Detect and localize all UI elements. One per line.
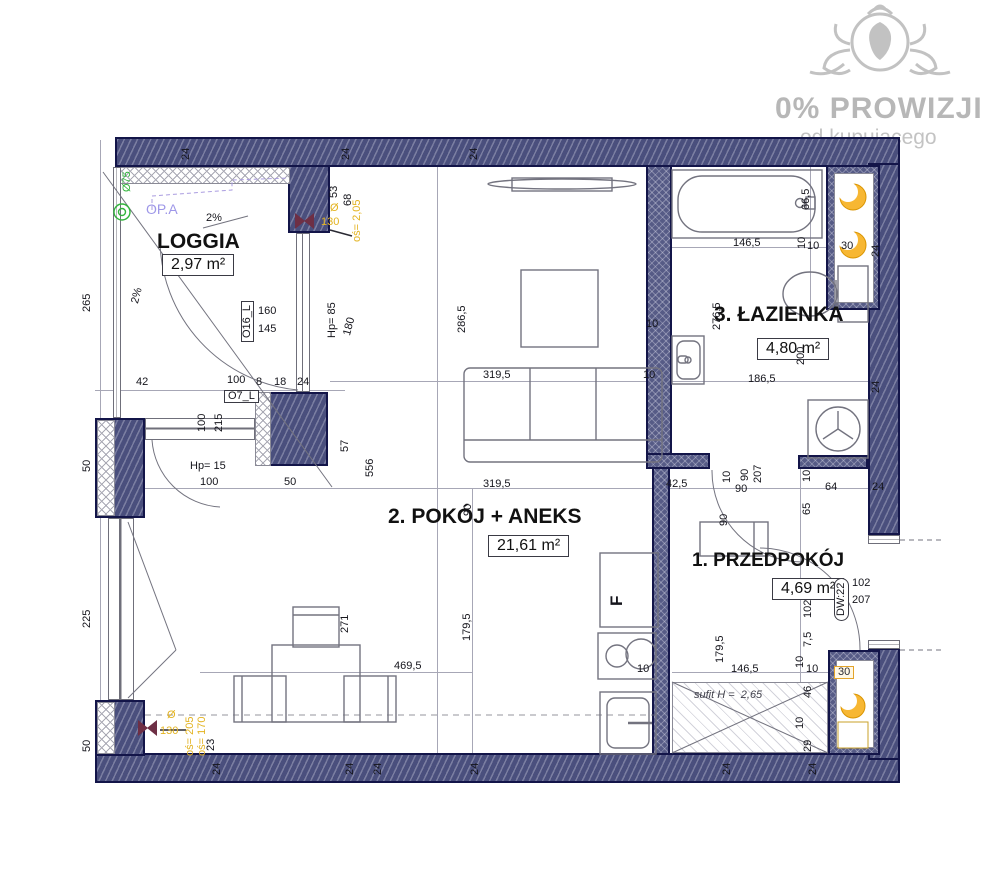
bathtub-icon	[672, 170, 822, 238]
kitchen-sink	[600, 692, 656, 754]
window-O8L-swing	[128, 522, 176, 650]
room-area-loggia: 2,97 m²	[162, 254, 234, 276]
slope-arrow	[203, 216, 248, 228]
drain-icon	[114, 204, 130, 220]
bath-door-swing	[712, 470, 802, 562]
furniture-layer	[0, 0, 983, 880]
shaft-cell	[838, 722, 868, 748]
dining-table	[234, 607, 396, 722]
room-area-hall: 4,69 m²	[772, 578, 844, 600]
room-label-living: 2. POKÓJ + ANEKS	[388, 505, 582, 529]
room-label-bath: 3. ŁAZIENKA	[714, 303, 844, 327]
window-O8L-swing	[128, 650, 176, 698]
room-area-bath: 4,80 m²	[757, 338, 829, 360]
room-label-hall: 1. PRZEDPOKÓJ	[692, 550, 844, 572]
radiator-icon	[488, 178, 636, 191]
sink-icon	[672, 336, 704, 384]
room-label-loggia: LOGGIA	[157, 230, 240, 254]
op-a-outline	[152, 178, 288, 210]
coffee-table	[521, 270, 598, 347]
fridge	[600, 553, 658, 627]
sofa	[464, 368, 662, 462]
floor-plan: 0% PROWIZJI od kupującego	[0, 0, 983, 880]
cooktop-icon	[598, 633, 656, 679]
room-area-living: 21,61 m²	[488, 535, 569, 557]
duct-arrow	[160, 230, 352, 730]
duct-bowtie-icon	[138, 213, 314, 736]
washer-icon	[808, 400, 868, 458]
window-O7L-swing	[152, 440, 220, 507]
